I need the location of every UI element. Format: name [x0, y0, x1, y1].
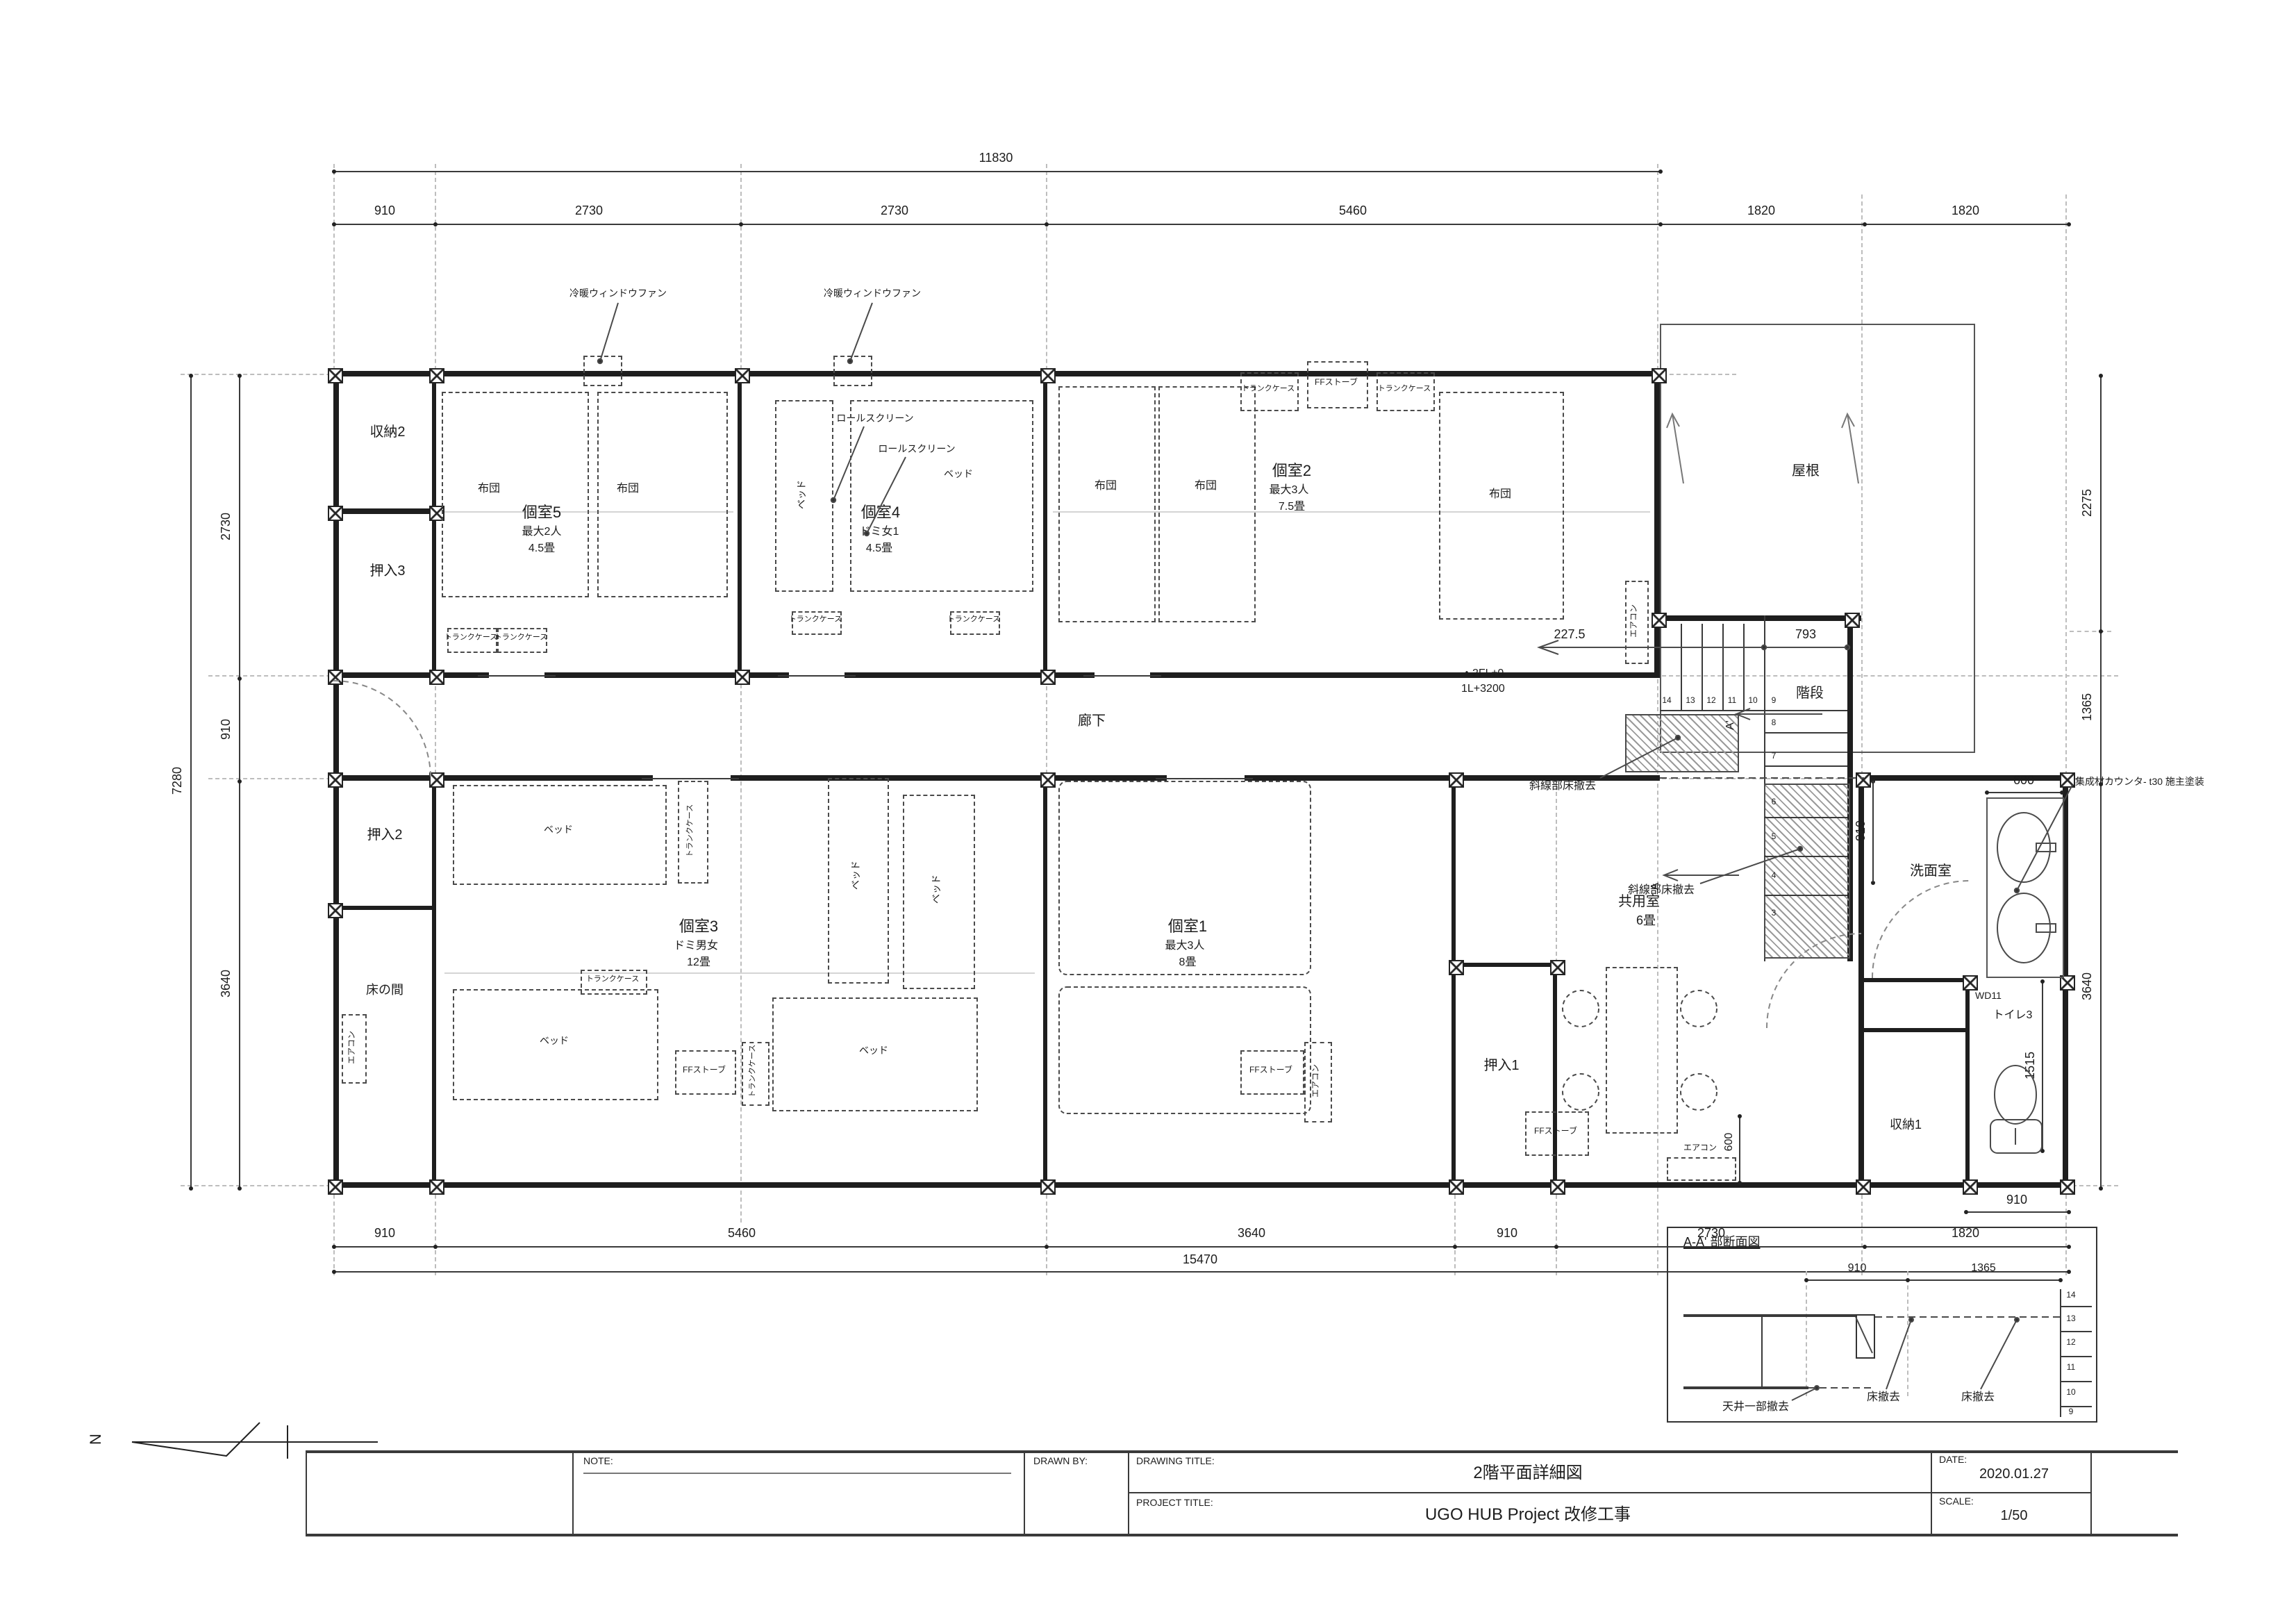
wall-stair-top — [1660, 615, 1861, 621]
wall-bottom — [333, 1182, 2068, 1188]
ff-stove-label: FFストーブ — [1534, 1128, 1577, 1136]
futon-outline — [442, 392, 589, 597]
wall-top — [333, 371, 1660, 376]
room-k1-name: 個室1 — [1168, 920, 1207, 936]
roof-label: 屋根 — [1792, 465, 1820, 479]
wall-wing-right — [1654, 371, 1660, 678]
dim-tick — [1862, 222, 1866, 226]
wall-k5-k4 — [738, 371, 742, 678]
section-num-10: 10 — [2066, 1389, 2075, 1398]
door-arc-corridor — [333, 681, 431, 778]
stair-tread — [1702, 624, 1703, 710]
room-k2-cap: 最大3人 — [1270, 485, 1309, 496]
dim-bottom-total: 15470 — [1183, 1254, 1217, 1266]
chair-circle — [1563, 991, 1599, 1027]
column-post — [1855, 1179, 1870, 1194]
wall-shuno2-divider — [333, 508, 436, 514]
ff-stove-label: FFストーブ — [1249, 1067, 1292, 1075]
stair-num-4: 4 — [1772, 872, 1777, 881]
trunk-label: トランクケース — [494, 636, 547, 643]
room-k4-cap: ドミ女1 — [860, 527, 899, 538]
ff-stove-label: FFストーブ — [1315, 379, 1358, 388]
dim-top-2: 2730 — [881, 205, 908, 217]
bed-outline — [850, 400, 1033, 592]
dim-tick — [2098, 629, 2102, 633]
ff-stove-label: FFストーブ — [683, 1067, 726, 1075]
room-common-size: 6畳 — [1636, 915, 1656, 927]
door-panel — [478, 675, 556, 677]
stair-landing-edge — [1660, 710, 1847, 711]
section-wall-line — [1761, 1317, 1763, 1386]
section-floor-line-low — [1683, 1386, 1808, 1389]
column-post — [327, 902, 342, 918]
dim-line — [1986, 792, 2061, 793]
dim-tick — [1905, 1277, 1909, 1282]
wall-leftcol-lower — [432, 775, 436, 1188]
titleblock-border — [306, 1450, 2178, 1452]
dim-tick — [2040, 1148, 2044, 1152]
dim-tick — [2058, 1277, 2062, 1282]
stair-num-12: 12 — [1706, 697, 1715, 706]
futon-label: 布団 — [1195, 481, 1217, 492]
section-marker-a-prime: A' — [1725, 720, 1736, 730]
column-post — [1448, 772, 1463, 787]
titleblock-divider — [1128, 1492, 2090, 1493]
room-k3-size: 12畳 — [687, 957, 710, 968]
floor-removal-note-1: 斜線部床撤去 — [1529, 781, 1596, 792]
column-post — [734, 367, 749, 383]
section-gridline — [1806, 1271, 1807, 1396]
column-post — [1448, 1179, 1463, 1194]
futon-label: 布団 — [1489, 489, 1511, 500]
column-post — [327, 505, 342, 520]
dim-line — [1739, 1116, 1740, 1182]
dim-tick — [2059, 790, 2063, 794]
door-panel — [1083, 675, 1161, 677]
project-title-label: PROJECT TITLE: — [1136, 1499, 1213, 1509]
bed-label: ベッド — [798, 480, 808, 509]
section-ceiling-removal: 天井一部撤去 — [1722, 1402, 1789, 1413]
stair-level-note-2: 1L+3200 — [1461, 683, 1505, 695]
dim-tick — [1804, 1277, 1808, 1282]
date-label: DATE: — [1939, 1456, 1967, 1466]
dim-top-0: 910 — [374, 205, 395, 217]
section-num-12: 12 — [2066, 1339, 2075, 1348]
dim-stair-width: 910 — [1855, 820, 1867, 841]
dim-counter-width: 600 — [2013, 774, 2034, 787]
room-oshiire1: 押入1 — [1483, 1060, 1519, 1074]
window-fan-outline — [583, 356, 622, 386]
section-num-11: 11 — [2067, 1364, 2075, 1373]
stair-num-3: 3 — [1772, 910, 1777, 918]
column-post — [2059, 1179, 2074, 1194]
bed-label: ベッド — [540, 1037, 569, 1047]
floor-removal-hatch-upper — [1625, 714, 1739, 772]
trunk-label: トランクケース — [688, 804, 696, 857]
dim-left-0: 2730 — [220, 513, 233, 540]
table-outline — [1606, 967, 1678, 1134]
scale-value: 1/50 — [2001, 1510, 2028, 1524]
room-k2-size: 7.5畳 — [1279, 502, 1305, 513]
room-k4-name: 個室4 — [861, 506, 900, 522]
trunk-label: トランクケース — [586, 977, 639, 985]
dim-stair-offset: 227.5 — [1554, 629, 1585, 641]
trunk-label: トランクケース — [1242, 387, 1295, 395]
wall-k1-right — [1451, 775, 1456, 1188]
dim-tick — [331, 1244, 335, 1248]
dim-bottom-0: 910 — [374, 1227, 395, 1240]
column-post — [327, 669, 342, 684]
dim-line-top-row — [333, 224, 2068, 225]
futon-label: 布団 — [478, 483, 500, 495]
dim-tick — [2040, 979, 2044, 983]
trunk-label: トランクケース — [444, 636, 497, 643]
aircon-label: エアコン — [349, 1031, 357, 1064]
column-post — [1448, 959, 1463, 975]
dim-right-2: 3640 — [2081, 972, 2094, 1000]
dim-tick — [1658, 222, 1662, 226]
aircon-label: エアコン — [1313, 1064, 1321, 1097]
stair-num-10: 10 — [1748, 697, 1757, 706]
room-washroom: 洗面室 — [1910, 865, 1952, 879]
stair-num-11: 11 — [1728, 697, 1736, 706]
column-post — [1962, 1179, 1977, 1194]
column-post — [429, 772, 444, 787]
dim-tick — [1554, 1244, 1558, 1248]
section-gridline — [1907, 1271, 1908, 1396]
bed-label: ベッド — [852, 861, 862, 890]
dim-right-1: 1365 — [2081, 693, 2094, 721]
stair-num-9: 9 — [1772, 697, 1777, 706]
aircon-label: エアコン — [1631, 604, 1639, 638]
column-post — [1549, 1179, 1565, 1194]
room-k3-cap: ドミ男女 — [674, 941, 718, 952]
note-label: NOTE: — [583, 1457, 613, 1467]
dim-tick — [1044, 222, 1048, 226]
wall-oshiire2-bottom — [333, 906, 436, 910]
section-floor-line — [1683, 1314, 1856, 1317]
dim-tick — [188, 1186, 192, 1190]
dim-tick — [2098, 1186, 2102, 1190]
dim-bottom-3: 910 — [1497, 1227, 1517, 1240]
stair-tread — [1764, 732, 1847, 734]
room-k1-size: 8畳 — [1179, 957, 1197, 968]
note-underline — [583, 1473, 1011, 1474]
section-stair-step — [2060, 1331, 2092, 1332]
door-panel — [642, 778, 739, 779]
stair-tread — [1743, 624, 1745, 710]
dim-tick — [433, 222, 437, 226]
room-k2-name: 個室2 — [1272, 465, 1311, 480]
gridline — [2070, 631, 2111, 632]
dim-top-5: 1820 — [1952, 205, 1979, 217]
section-floor-removal-2: 床撤去 — [1961, 1392, 1995, 1403]
futon-outline — [597, 392, 728, 597]
dim-top-total: 11830 — [979, 152, 1013, 165]
section-stair-step — [2060, 1381, 2092, 1382]
wall-washroom-top — [1864, 775, 2068, 781]
trunk-label: トランクケース — [1378, 387, 1431, 395]
column-post — [1549, 959, 1565, 975]
window-fan-label: 冷暖ウィンドウファン — [569, 290, 667, 299]
titleblock-divider — [2090, 1450, 2092, 1535]
titleblock-divider — [1024, 1450, 1025, 1535]
dim-tick — [331, 222, 335, 226]
stair-label: 階段 — [1796, 688, 1824, 702]
dim-line-left-total — [190, 375, 192, 1188]
chair-circle — [1563, 1074, 1599, 1110]
drawn-by-label: DRAWN BY: — [1033, 1457, 1088, 1467]
room-common-name: 共用室 — [1618, 896, 1660, 910]
dim-tick — [237, 1186, 241, 1190]
section-dim-b: 1365 — [1971, 1263, 1996, 1274]
bed-label: ベッド — [933, 875, 942, 904]
stair-num-8: 8 — [1772, 720, 1777, 728]
dim-stair-well: 793 — [1795, 629, 1816, 641]
column-post — [1962, 975, 1977, 990]
room-tokonoma: 床の間 — [366, 984, 404, 997]
dim-aircon-depth: 600 — [1724, 1133, 1735, 1152]
room-oshiire2: 押入2 — [367, 829, 402, 843]
stair-num-7: 7 — [1772, 753, 1777, 761]
titleblock-divider — [572, 1450, 574, 1535]
room-k4-size: 4.5畳 — [866, 543, 892, 554]
titleblock-border — [306, 1534, 2178, 1536]
dim-top-4: 1820 — [1747, 205, 1775, 217]
section-stair-wall — [2060, 1289, 2061, 1417]
dim-tick — [1737, 1180, 1741, 1184]
window-fan-outline — [833, 356, 872, 386]
column-post — [2059, 772, 2074, 787]
wall-oshiire1-top — [1451, 963, 1557, 967]
dim-tick — [331, 169, 335, 173]
wall-wd-header — [1858, 978, 1970, 982]
room-k5-size: 4.5畳 — [529, 543, 555, 554]
section-stair-step — [2060, 1406, 2092, 1407]
futon-label: 布団 — [617, 483, 639, 495]
section-floor-removal-1: 床撤去 — [1867, 1392, 1900, 1403]
dim-tick — [738, 222, 742, 226]
column-post — [1040, 367, 1055, 383]
column-post — [429, 669, 444, 684]
counter-note: 集成材カウンタ- t30 施主塗装 — [2075, 778, 2204, 788]
chair-circle — [1681, 991, 1717, 1027]
room-k5-name: 個室5 — [522, 506, 561, 522]
room-k5-cap: 最大2人 — [522, 527, 562, 538]
section-num-9: 9 — [2069, 1409, 2074, 1417]
counter-outline — [1986, 797, 2064, 978]
column-post — [429, 1179, 444, 1194]
section-num-14: 14 — [2066, 1292, 2075, 1300]
futon-outline — [1158, 386, 1256, 622]
dim-bottom-1: 5460 — [728, 1227, 756, 1240]
room-k1-cap: 最大3人 — [1165, 941, 1205, 952]
stair-tread — [1722, 624, 1724, 710]
section-stair-step — [2060, 1356, 2092, 1357]
section-beam — [1856, 1314, 1875, 1359]
dim-tick — [433, 1244, 437, 1248]
corridor-label: 廊下 — [1078, 715, 1106, 729]
trunk-label: トランクケース — [947, 618, 1000, 625]
door-tag-wd11: WD11 — [1975, 992, 2002, 1002]
dim-tick — [1044, 1244, 1048, 1248]
room-oshiire3: 押入3 — [369, 565, 405, 579]
bed-label: ベッド — [944, 470, 973, 480]
futon-label: 布団 — [1095, 481, 1117, 492]
room-shuno2: 収納2 — [369, 426, 405, 440]
aircon-label: エアコン — [1683, 1145, 1717, 1153]
futon-outline — [1439, 392, 1564, 620]
dim-line-toilet-depth — [2042, 981, 2043, 1150]
dim-toilet-width: 910 — [2006, 1194, 2027, 1207]
trunk-label: トランクケース — [751, 1045, 758, 1097]
stair-level-note-1: ・2FL±0 — [1461, 668, 1504, 679]
wall-toilet-partition — [1965, 978, 1970, 1188]
stair-num-5: 5 — [1772, 834, 1777, 842]
column-post — [1855, 772, 1870, 787]
wall-shuno1-top — [1864, 1028, 1970, 1032]
titleblock-divider — [1128, 1450, 1129, 1535]
titleblock-divider — [306, 1450, 307, 1535]
wall-k4-k2 — [1043, 371, 1047, 678]
drawing-title-label: DRAWING TITLE: — [1136, 1457, 1215, 1467]
column-post — [327, 772, 342, 787]
date-value: 2020.01.27 — [1979, 1468, 2049, 1482]
drawing-title: 2階平面詳細図 — [1473, 1464, 1582, 1481]
stair-tread — [1764, 817, 1847, 818]
dim-toilet-depth: 1515 — [2024, 1052, 2037, 1079]
wall-leftcol-upper — [432, 371, 436, 678]
column-post — [1651, 612, 1666, 627]
stair-tread — [1681, 624, 1682, 710]
floor-removal-hatch-lower — [1764, 784, 1850, 959]
section-stair-step — [2060, 1306, 2092, 1307]
north-label: N — [90, 1434, 105, 1445]
room-toilet: トイレ3 — [1993, 1010, 2033, 1021]
dim-left-2: 3640 — [220, 970, 233, 997]
bed-label: ベッド — [859, 1047, 888, 1057]
section-dim-line — [1806, 1279, 2060, 1281]
section-dim-a: 910 — [1848, 1263, 1867, 1274]
dim-left-1: 910 — [220, 719, 233, 740]
chair-circle — [1681, 1074, 1717, 1110]
stair-num-6: 6 — [1772, 799, 1777, 807]
dim-tick — [2098, 781, 2102, 786]
room-k3-name: 個室3 — [679, 920, 718, 936]
leader-window-fan-2 — [850, 303, 872, 361]
scale-label: SCALE: — [1939, 1498, 1974, 1507]
section-num-13: 13 — [2066, 1316, 2075, 1324]
column-post — [1651, 367, 1666, 383]
stair-num-13: 13 — [1686, 697, 1695, 706]
dim-tick — [2066, 1209, 2070, 1213]
stair-arrowhead — [1539, 640, 1558, 654]
column-post — [734, 669, 749, 684]
dim-tick — [1963, 1209, 1968, 1213]
floor-plan-sheet: 屋根 — [0, 0, 2296, 1623]
dim-tick — [237, 676, 241, 680]
section-mark-a-head — [1664, 870, 1678, 881]
dim-tick — [1737, 1113, 1741, 1118]
project-title: UGO HUB Project 改修工事 — [1425, 1506, 1631, 1523]
door-panel — [778, 675, 856, 677]
futon-outline — [1058, 386, 1156, 622]
bed-label: ベッド — [544, 826, 573, 836]
dim-tick — [2098, 373, 2102, 377]
titleblock-divider — [1931, 1450, 1932, 1535]
column-post — [429, 367, 444, 383]
dim-tick — [331, 1269, 335, 1273]
column-post — [327, 367, 342, 383]
aircon-outline — [1667, 1157, 1736, 1181]
dim-line-toilet-width — [1965, 1211, 2068, 1213]
column-post — [1040, 772, 1055, 787]
dim-tick — [2066, 222, 2070, 226]
column-post — [1844, 612, 1859, 627]
stair-num-14: 14 — [1662, 697, 1671, 706]
stair-tread — [1764, 895, 1847, 896]
dim-line — [1872, 781, 1874, 882]
column-post — [1040, 1179, 1055, 1194]
wall-k3-k1 — [1043, 775, 1047, 1188]
dim-left-total: 7280 — [172, 767, 184, 795]
toilet-tank — [1990, 1120, 2042, 1153]
door-arc-washroom — [1872, 881, 1970, 978]
trunk-label: トランクケース — [789, 618, 842, 625]
leader-window-fan-1 — [600, 303, 618, 361]
room-shuno1: 収納1 — [1890, 1119, 1922, 1132]
section-title: A-A' 部断面図 — [1683, 1236, 1760, 1249]
door-panel — [1156, 778, 1253, 779]
dim-tick — [1984, 790, 1988, 794]
dim-top-1: 2730 — [575, 205, 603, 217]
dim-tick — [188, 373, 192, 377]
section-marker-a: A — [1650, 883, 1661, 890]
north-arrow — [132, 1423, 378, 1459]
dim-top-3: 5460 — [1339, 205, 1367, 217]
dim-tick — [1658, 169, 1662, 173]
dim-line-top-total — [333, 171, 1660, 172]
column-post — [1040, 669, 1055, 684]
dim-tick — [1452, 1244, 1456, 1248]
dim-bottom-2: 3640 — [1238, 1227, 1265, 1240]
stair-tread — [1764, 856, 1847, 857]
column-post — [327, 1179, 342, 1194]
stair-tread — [1764, 765, 1847, 767]
dim-right-0: 2275 — [2081, 489, 2094, 517]
dim-tick — [237, 373, 241, 377]
window-fan-label: 冷暖ウィンドウファン — [824, 290, 921, 299]
dim-tick — [237, 779, 241, 783]
